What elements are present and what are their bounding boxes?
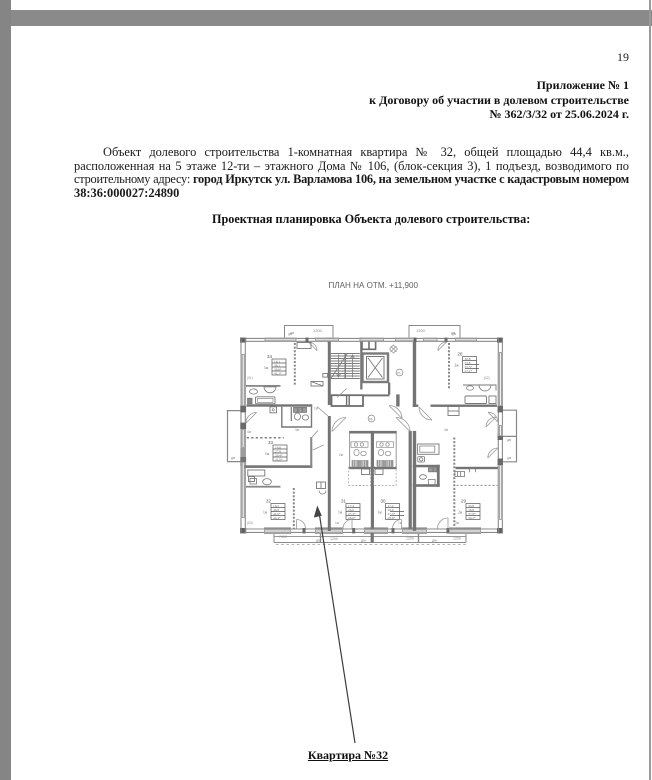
svg-text:дм: дм bbox=[316, 539, 321, 543]
svg-text:44,4*: 44,4* bbox=[273, 516, 281, 521]
svg-text:3м: 3м bbox=[455, 521, 459, 525]
svg-text:28,6*: 28,6* bbox=[388, 516, 396, 521]
svg-text:1200: 1200 bbox=[453, 537, 461, 541]
svg-text:4м: 4м bbox=[444, 428, 448, 432]
svg-text:1200: 1200 bbox=[416, 328, 426, 333]
svg-text:1200: 1200 bbox=[313, 328, 323, 333]
svg-text:дм: дм bbox=[507, 438, 511, 442]
svg-text:32: 32 bbox=[266, 499, 272, 504]
svg-text:1м: 1м bbox=[398, 521, 402, 525]
svg-text:41,1*: 41,1* bbox=[274, 372, 282, 377]
svg-text:34: 34 bbox=[267, 354, 273, 359]
svg-text:(03): (03) bbox=[247, 521, 253, 525]
svg-text:31: 31 bbox=[341, 499, 347, 504]
svg-text:28: 28 bbox=[458, 352, 464, 357]
svg-text:2ж: 2ж bbox=[455, 364, 460, 368]
svg-text:05: 05 bbox=[397, 371, 401, 375]
svg-text:3м: 3м bbox=[295, 428, 299, 432]
svg-text:1200: 1200 bbox=[406, 537, 414, 541]
svg-text:39,2*: 39,2* bbox=[468, 516, 476, 521]
svg-text:ПЛАН НА ОТМ. +11,900: ПЛАН НА ОТМ. +11,900 bbox=[329, 281, 419, 290]
svg-text:33: 33 bbox=[268, 440, 274, 445]
svg-text:29: 29 bbox=[461, 499, 467, 504]
svg-text:2м: 2м bbox=[339, 453, 343, 457]
svg-text:57,1*: 57,1* bbox=[465, 369, 473, 374]
svg-text:дм: дм bbox=[361, 539, 366, 543]
svg-text:дм: дм bbox=[432, 539, 437, 543]
svg-text:1м: 1м bbox=[314, 407, 318, 411]
svg-text:4м: 4м bbox=[247, 430, 251, 434]
svg-text:06: 06 bbox=[369, 417, 373, 421]
svg-text:дм: дм bbox=[231, 456, 235, 460]
svg-text:7400: 7400 bbox=[279, 535, 287, 539]
svg-text:дм: дм bbox=[451, 331, 455, 335]
svg-text:1м: 1м bbox=[335, 521, 339, 525]
svg-text:1ж: 1ж bbox=[265, 452, 270, 456]
svg-text:(01): (01) bbox=[247, 376, 253, 380]
svg-text:(02): (02) bbox=[484, 376, 490, 380]
svg-text:1ж: 1ж bbox=[264, 366, 269, 370]
svg-text:30: 30 bbox=[381, 499, 387, 504]
svg-text:дм: дм bbox=[507, 456, 511, 460]
svg-text:дм: дм bbox=[290, 331, 294, 335]
svg-text:2ж: 2ж bbox=[458, 511, 463, 515]
svg-text:1ж: 1ж bbox=[338, 511, 343, 515]
svg-text:1ж: 1ж bbox=[263, 511, 268, 515]
svg-text:1200: 1200 bbox=[330, 537, 338, 541]
svg-text:1ж: 1ж bbox=[378, 511, 383, 515]
svg-text:31,0*: 31,0* bbox=[275, 458, 283, 463]
